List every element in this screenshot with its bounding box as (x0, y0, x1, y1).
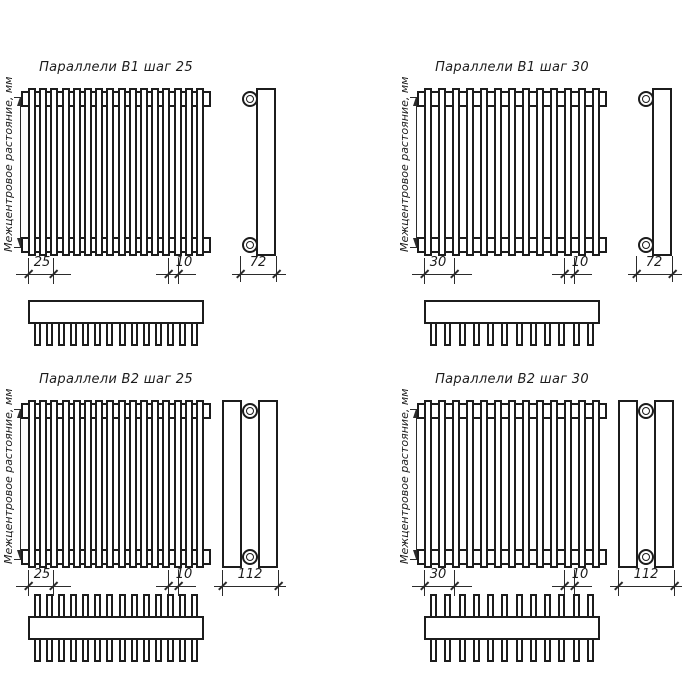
comb-tooth (573, 638, 580, 662)
tube-dimension-value: 10 (566, 255, 594, 270)
radiator-tube (508, 88, 516, 256)
radiator-tube (452, 400, 460, 568)
radiator-tube (438, 88, 446, 256)
comb-tooth (459, 638, 466, 662)
radiator-tube (84, 400, 92, 568)
radiator-tube (39, 400, 47, 568)
radiator-side-view-front-row (618, 400, 638, 568)
comb-tooth (119, 322, 126, 346)
comb-collector-bar (28, 300, 204, 324)
pipe-hole-top-icon (642, 407, 650, 415)
comb-tooth (167, 594, 174, 618)
comb-tooth (444, 594, 451, 618)
radiator-tube (84, 88, 92, 256)
comb-tooth (34, 638, 41, 662)
comb-tooth (459, 594, 466, 618)
depth-extension-line-2 (276, 256, 277, 282)
comb-tooth (70, 594, 77, 618)
radiator-side-view-back-row (654, 400, 674, 568)
inter-center-distance-label: Межцентровое растояние, мм (2, 92, 16, 252)
radiator-tube (162, 88, 170, 256)
depth-extension-line-2 (672, 256, 673, 282)
comb-tooth (473, 594, 480, 618)
comb-tooth (106, 638, 113, 662)
pipe-hole-bottom-icon (642, 241, 650, 249)
comb-tooth (573, 594, 580, 618)
tube-dimension-value: 10 (170, 255, 198, 270)
depth-extension-line-1 (240, 256, 241, 282)
radiator-tube (592, 400, 600, 568)
comb-tooth (46, 594, 53, 618)
comb-tooth (131, 322, 138, 346)
drawing-title: Параллели В1 шаг 25 (14, 60, 218, 75)
comb-tooth (179, 638, 186, 662)
comb-tooth (58, 594, 65, 618)
radiator-tube (62, 88, 70, 256)
inter-center-distance-label: Межцентровое растояние, мм (398, 92, 412, 252)
comb-tooth (516, 594, 523, 618)
pipe-hole-bottom-icon (642, 553, 650, 561)
radiator-tube (151, 400, 159, 568)
comb-tooth (516, 322, 523, 346)
comb-tooth (34, 594, 41, 618)
radiator-tube (151, 88, 159, 256)
comb-tooth (106, 322, 113, 346)
comb-tooth (94, 638, 101, 662)
radiator-front-view (28, 400, 204, 568)
pitch-dimension-value: 30 (422, 255, 454, 270)
comb-tooth (82, 638, 89, 662)
radiator-tube (174, 400, 182, 568)
comb-tooth (459, 322, 466, 346)
radiator-tube (452, 88, 460, 256)
radiator-tube (550, 400, 558, 568)
radiator-front-view (28, 88, 204, 256)
comb-tooth (46, 638, 53, 662)
comb-tooth (191, 638, 198, 662)
vertical-dimension-line (416, 409, 417, 559)
radiator-tube (196, 400, 204, 568)
radiator-tube (185, 88, 193, 256)
radiator-tube (494, 88, 502, 256)
radiator-tube (522, 88, 530, 256)
pipe-hole-top-icon (246, 407, 254, 415)
radiator-tube (578, 88, 586, 256)
comb-tooth (143, 322, 150, 346)
radiator-tube (508, 400, 516, 568)
depth-extension-line-1 (636, 256, 637, 282)
radiator-tube (536, 400, 544, 568)
radiator-tube (73, 400, 81, 568)
comb-tooth (179, 594, 186, 618)
comb-tooth (444, 322, 451, 346)
comb-tooth (558, 638, 565, 662)
depth-dimension-value: 112 (236, 567, 264, 582)
comb-tooth (544, 638, 551, 662)
comb-tooth (487, 594, 494, 618)
comb-tooth (530, 638, 537, 662)
comb-tooth (191, 322, 198, 346)
pipe-hole-top-icon (246, 95, 254, 103)
comb-tooth (587, 322, 594, 346)
comb-tooth (501, 322, 508, 346)
radiator-tube (50, 88, 58, 256)
comb-tooth (94, 322, 101, 346)
comb-tooth (70, 322, 77, 346)
pipe-hole-bottom-icon (246, 241, 254, 249)
radiator-tube (106, 400, 114, 568)
drawing-title: Параллели В1 шаг 30 (410, 60, 614, 75)
comb-collector-bar (424, 616, 600, 640)
radiator-side-view (256, 88, 276, 256)
comb-tooth (82, 594, 89, 618)
radiator-tube (536, 88, 544, 256)
radiator-tube (50, 400, 58, 568)
radiator-tube (550, 88, 558, 256)
comb-tooth (558, 594, 565, 618)
radiator-tube (564, 400, 572, 568)
radiator-tube (424, 88, 432, 256)
radiator-tube (118, 88, 126, 256)
comb-tooth (587, 594, 594, 618)
comb-tooth (131, 638, 138, 662)
radiator-tube (129, 400, 137, 568)
comb-tooth (167, 322, 174, 346)
comb-tooth (34, 322, 41, 346)
tube-dimension-value: 10 (170, 567, 198, 582)
depth-dimension-value: 112 (632, 567, 660, 582)
radiator-tube (480, 400, 488, 568)
comb-tooth (155, 322, 162, 346)
radiator-tube (494, 400, 502, 568)
radiator-front-view (424, 400, 600, 568)
comb-collector-bar (424, 300, 600, 324)
radiator-tube (480, 88, 488, 256)
radiator-tube (592, 88, 600, 256)
comb-tooth (119, 638, 126, 662)
comb-collector-bar (28, 616, 204, 640)
comb-tooth (473, 638, 480, 662)
pipe-hole-bottom-icon (246, 553, 254, 561)
tube-dimension-value: 10 (566, 567, 594, 582)
comb-tooth (167, 638, 174, 662)
pipe-hole-top-icon (642, 95, 650, 103)
radiator-tube (95, 400, 103, 568)
vertical-dimension-line (20, 97, 21, 247)
radiator-tube (129, 88, 137, 256)
radiator-tube (73, 88, 81, 256)
radiator-tube (106, 88, 114, 256)
comb-tooth (573, 322, 580, 346)
radiator-tube (140, 400, 148, 568)
radiator-tube (424, 400, 432, 568)
pitch-dimension-value: 25 (26, 255, 58, 270)
radiator-tube (140, 88, 148, 256)
comb-tooth (155, 594, 162, 618)
radiator-side-view-front-row (222, 400, 242, 568)
drawing-canvas: Параллели В1 шаг 25 Межцентровое растоян… (0, 0, 700, 700)
comb-tooth (58, 322, 65, 346)
comb-tooth (131, 594, 138, 618)
comb-tooth (191, 594, 198, 618)
radiator-side-view-back-row (258, 400, 278, 568)
comb-tooth (119, 594, 126, 618)
comb-tooth (179, 322, 186, 346)
pitch-dimension-line (16, 274, 71, 275)
radiator-tube (564, 88, 572, 256)
vertical-dimension-line (20, 409, 21, 559)
comb-tooth (155, 638, 162, 662)
depth-dimension-value: 72 (244, 255, 272, 270)
comb-tooth (587, 638, 594, 662)
comb-tooth (82, 322, 89, 346)
comb-tooth (473, 322, 480, 346)
comb-tooth (430, 322, 437, 346)
radiator-tube (62, 400, 70, 568)
comb-tooth (487, 322, 494, 346)
comb-tooth (106, 594, 113, 618)
radiator-tube (28, 400, 36, 568)
comb-tooth (143, 638, 150, 662)
radiator-tube (174, 88, 182, 256)
comb-tooth (444, 638, 451, 662)
radiator-side-view (652, 88, 672, 256)
inter-center-distance-label: Межцентровое растояние, мм (398, 404, 412, 564)
comb-tooth (430, 638, 437, 662)
comb-tooth (501, 638, 508, 662)
radiator-tube (466, 400, 474, 568)
vertical-dimension-line (416, 97, 417, 247)
comb-tooth (558, 322, 565, 346)
comb-tooth (487, 638, 494, 662)
radiator-tube (196, 88, 204, 256)
radiator-tube (438, 400, 446, 568)
pitch-dimension-value: 25 (26, 567, 58, 582)
radiator-tube (522, 400, 530, 568)
radiator-top-view (424, 594, 600, 662)
comb-tooth (544, 594, 551, 618)
comb-tooth (530, 322, 537, 346)
radiator-tube (118, 400, 126, 568)
drawing-title: Параллели В2 шаг 30 (410, 372, 614, 387)
comb-tooth (46, 322, 53, 346)
pitch-dimension-line (16, 586, 71, 587)
radiator-tube (28, 88, 36, 256)
radiator-front-view (424, 88, 600, 256)
comb-tooth (94, 594, 101, 618)
comb-tooth (58, 638, 65, 662)
comb-tooth (530, 594, 537, 618)
quadrant-b2-step-25: Параллели В2 шаг 25 Межцентровое растоян… (0, 312, 304, 700)
comb-tooth (143, 594, 150, 618)
comb-tooth (544, 322, 551, 346)
comb-tooth (430, 594, 437, 618)
radiator-top-view (28, 594, 204, 662)
comb-tooth (70, 638, 77, 662)
pitch-dimension-value: 30 (422, 567, 454, 582)
radiator-tube (39, 88, 47, 256)
inter-center-distance-label: Межцентровое растояние, мм (2, 404, 16, 564)
radiator-tube (185, 400, 193, 568)
quadrant-b2-step-30: Параллели В2 шаг 30 Межцентровое растоян… (396, 312, 700, 700)
depth-dimension-value: 72 (640, 255, 668, 270)
radiator-tube (162, 400, 170, 568)
radiator-tube (466, 88, 474, 256)
radiator-tube (578, 400, 586, 568)
drawing-title: Параллели В2 шаг 25 (14, 372, 218, 387)
comb-tooth (501, 594, 508, 618)
comb-tooth (516, 638, 523, 662)
radiator-tube (95, 88, 103, 256)
